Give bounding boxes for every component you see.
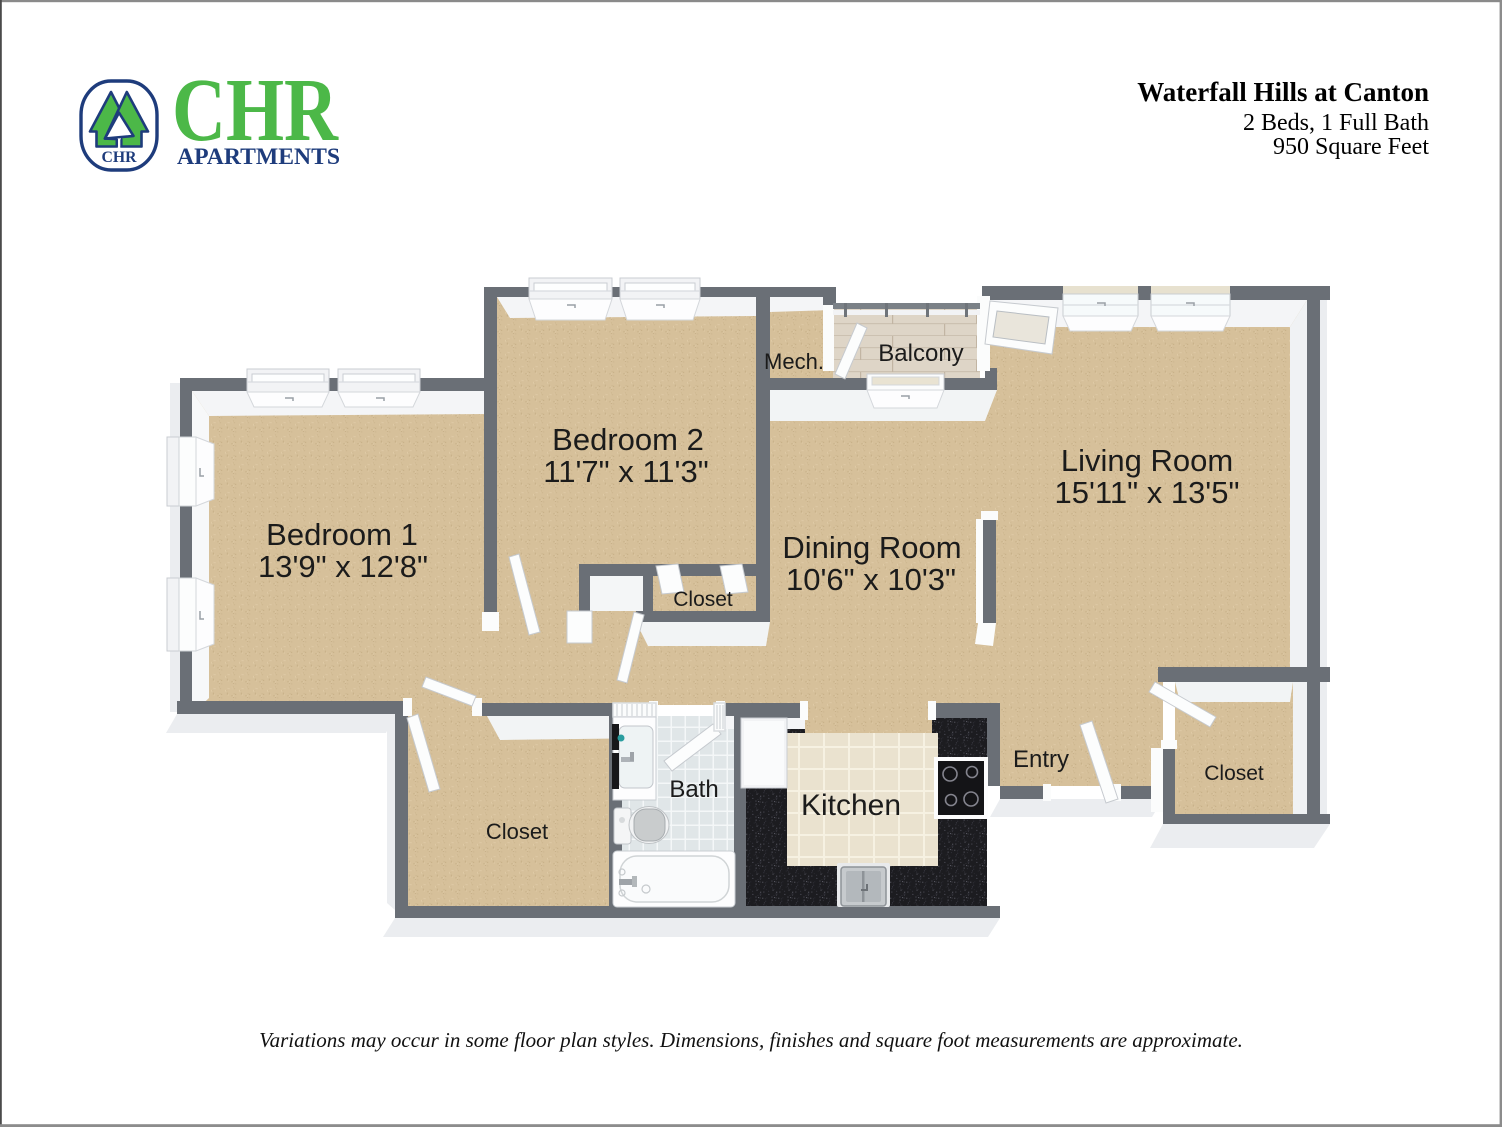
svg-text:APARTMENTS: APARTMENTS: [177, 144, 340, 169]
svg-text:Dining Room: Dining Room: [782, 530, 961, 565]
svg-text:950 Square Feet: 950 Square Feet: [1273, 134, 1429, 160]
svg-text:CHR: CHR: [102, 149, 137, 166]
svg-text:Mech.: Mech.: [764, 349, 824, 374]
svg-text:Closet: Closet: [673, 588, 733, 611]
svg-text:11'7" x 11'3": 11'7" x 11'3": [543, 454, 708, 489]
svg-text:Balcony: Balcony: [878, 340, 963, 367]
svg-text:Waterfall Hills at Canton: Waterfall Hills at Canton: [1137, 77, 1429, 107]
svg-text:Living Room: Living Room: [1061, 443, 1233, 478]
svg-text:Bedroom 2: Bedroom 2: [552, 422, 704, 457]
svg-text:Kitchen: Kitchen: [801, 789, 901, 822]
svg-text:15'11" x 13'5": 15'11" x 13'5": [1055, 475, 1240, 510]
svg-text:Variations may occur in some f: Variations may occur in some floor plan …: [259, 1028, 1243, 1052]
svg-text:Bedroom 1: Bedroom 1: [266, 517, 418, 552]
svg-text:13'9" x 12'8": 13'9" x 12'8": [258, 549, 428, 584]
svg-text:Entry: Entry: [1013, 746, 1069, 773]
svg-text:Closet: Closet: [486, 819, 548, 844]
svg-text:2 Beds, 1 Full Bath: 2 Beds, 1 Full Bath: [1243, 110, 1429, 136]
svg-text:Bath: Bath: [669, 776, 718, 803]
svg-text:Closet: Closet: [1204, 762, 1264, 785]
svg-text:10'6" x 10'3": 10'6" x 10'3": [786, 562, 956, 597]
